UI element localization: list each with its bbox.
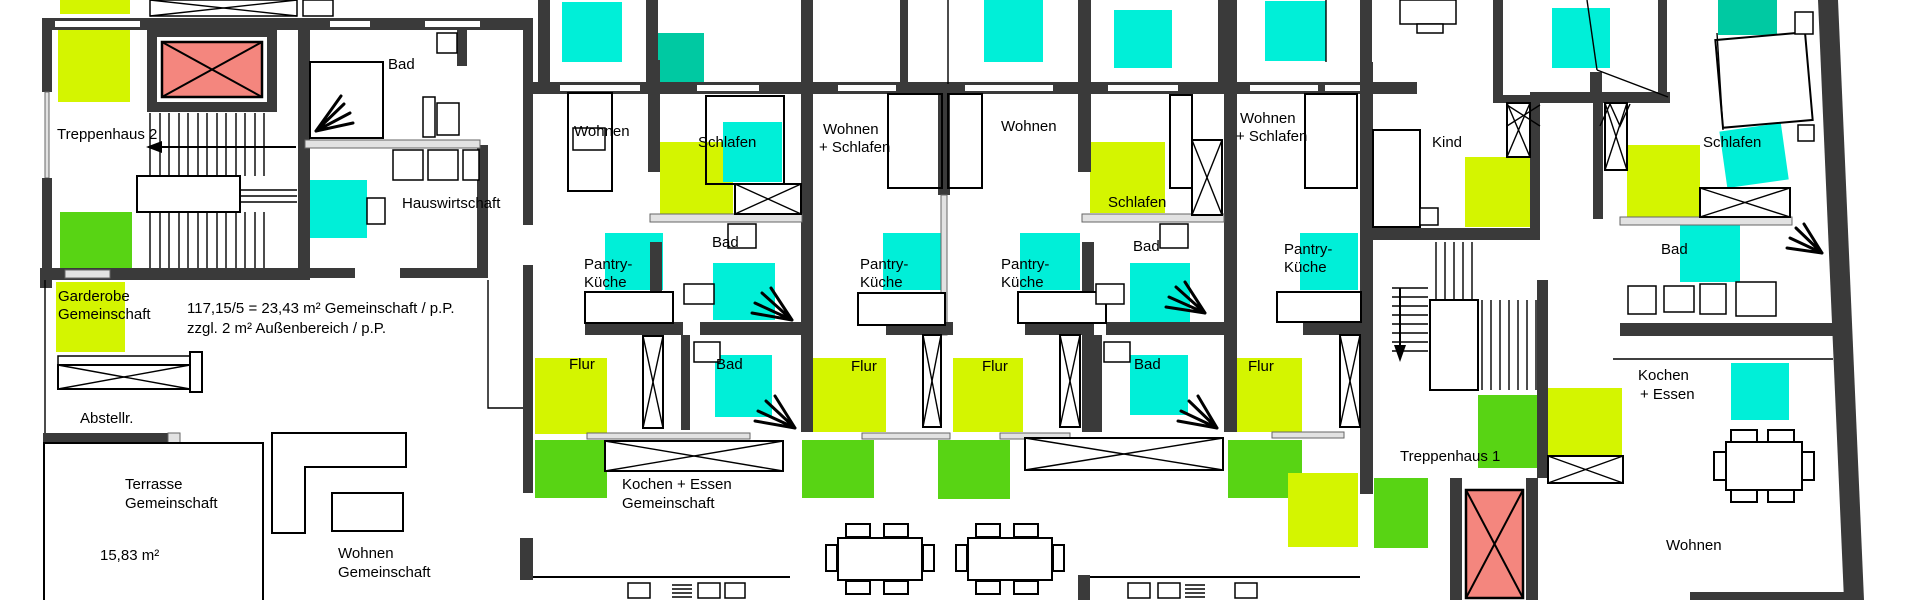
label-wohnen-gemeinschaft: Wohnen bbox=[338, 545, 394, 563]
label-unit1-pantry: Pantry- bbox=[584, 256, 632, 274]
label-unit2-pantry: Pantry- bbox=[860, 256, 908, 274]
label-unit5-wohnen: Wohnen bbox=[1666, 537, 1722, 555]
room-marker bbox=[1265, 1, 1326, 61]
room-marker bbox=[1627, 145, 1700, 218]
room-marker bbox=[1465, 157, 1530, 227]
crossed-wardrobe bbox=[1340, 335, 1360, 427]
label-unit2-wohnen-2: + Schlafen bbox=[819, 139, 890, 157]
annotation-line-2: zzgl. 2 m² Außenbereich / p.P. bbox=[187, 320, 386, 338]
crossed-cabinet bbox=[735, 184, 801, 214]
room-marker bbox=[1552, 8, 1610, 68]
room-marker bbox=[60, 212, 132, 268]
annotation-line-1: 117,15/5 = 23,43 m² Gemeinschaft / p.P. bbox=[187, 300, 455, 318]
label-unit5-bad: Bad bbox=[1661, 241, 1688, 259]
room-marker bbox=[535, 440, 607, 498]
label-unit1-wohnen: Wohnen bbox=[574, 123, 630, 141]
label-terrasse: Terrasse bbox=[125, 476, 183, 494]
label-kochen-gemeinschaft-2: Gemeinschaft bbox=[622, 495, 715, 513]
room-marker bbox=[938, 440, 1010, 499]
label-unit5-schlafen: Schlafen bbox=[1703, 134, 1761, 152]
elevator-1 bbox=[1450, 478, 1538, 600]
crossed-sideboard bbox=[605, 441, 783, 471]
room-marker bbox=[802, 440, 874, 498]
label-kind: Kind bbox=[1432, 134, 1462, 152]
label-unit4-pantry-2: Küche bbox=[1284, 259, 1327, 277]
room-marker bbox=[60, 0, 130, 14]
crossed-bed-right bbox=[1700, 188, 1790, 217]
crossed-wardrobe bbox=[643, 336, 663, 428]
balcony-top-left bbox=[150, 0, 333, 16]
label-unit1-schlafen: Schlafen bbox=[698, 134, 756, 152]
label-garderobe-2: Gemeinschaft bbox=[58, 306, 151, 324]
crossed-wardrobe bbox=[1605, 103, 1627, 170]
label-unit2-wohnen: Wohnen bbox=[823, 121, 879, 139]
garderobe-wardrobe bbox=[58, 352, 202, 392]
label-unit5-kochen-2: + Essen bbox=[1640, 386, 1695, 404]
bad-entry-room bbox=[310, 62, 459, 138]
room-marker bbox=[1114, 10, 1172, 68]
kitchen-counters bbox=[520, 538, 1360, 600]
label-treppenhaus-2: Treppenhaus 2 bbox=[57, 126, 157, 144]
crossed-wardrobe bbox=[1060, 335, 1080, 427]
label-unit2-pantry-2: Küche bbox=[860, 274, 903, 292]
stair-direction-arrow bbox=[1394, 345, 1406, 362]
crossed-wardrobe bbox=[1192, 140, 1222, 215]
floor-plan: Treppenhaus 2 Bad Hauswirtschaft Gardero… bbox=[0, 0, 1917, 600]
label-kochen-gemeinschaft: Kochen + Essen bbox=[622, 476, 732, 494]
room-marker bbox=[1718, 0, 1777, 35]
room-marker bbox=[1719, 123, 1788, 188]
room-marker bbox=[1288, 473, 1358, 547]
label-unit3-flur: Flur bbox=[982, 358, 1008, 376]
label-bad-lower-west: Bad bbox=[716, 356, 743, 374]
elevator-2 bbox=[152, 32, 272, 107]
crossed-sideboard bbox=[1548, 456, 1623, 483]
label-unit3-wohnen: Wohnen bbox=[1001, 118, 1057, 136]
crossed-wardrobe bbox=[923, 335, 941, 427]
label-terrasse-area: 15,83 m² bbox=[100, 547, 159, 565]
label-unit3-schlafen: Schlafen bbox=[1108, 194, 1166, 212]
label-bad-lower-east: Bad bbox=[1134, 356, 1161, 374]
staircase-1 bbox=[1392, 242, 1536, 390]
room-marker bbox=[562, 2, 622, 62]
bed-slanted bbox=[1715, 32, 1812, 128]
label-bad-entry: Bad bbox=[388, 56, 415, 74]
room-marker bbox=[713, 263, 775, 320]
dining-table bbox=[956, 524, 1064, 594]
label-unit4-wohnen-2: + Schlafen bbox=[1236, 128, 1307, 146]
dining-table bbox=[1714, 430, 1814, 502]
label-hauswirtschaft: Hauswirtschaft bbox=[402, 195, 500, 213]
label-unit3-bad: Bad bbox=[1133, 238, 1160, 256]
label-unit1-bad: Bad bbox=[712, 234, 739, 252]
label-unit2-flur: Flur bbox=[851, 358, 877, 376]
label-garderobe: Garderobe bbox=[58, 288, 130, 306]
label-unit4-flur: Flur bbox=[1248, 358, 1274, 376]
label-terrasse-2: Gemeinschaft bbox=[125, 495, 218, 513]
label-wohnen-gemeinschaft-2: Gemeinschaft bbox=[338, 564, 431, 582]
room-marker bbox=[1680, 225, 1740, 282]
room-marker bbox=[984, 0, 1043, 62]
label-unit3-pantry-2: Küche bbox=[1001, 274, 1044, 292]
sofa-wohnen-gemeinschaft bbox=[272, 433, 406, 533]
dining-table bbox=[826, 524, 934, 594]
label-unit1-pantry-2: Küche bbox=[584, 274, 627, 292]
room-marker bbox=[310, 180, 367, 238]
label-abstellraum: Abstellr. bbox=[80, 410, 133, 428]
label-unit1-flur: Flur bbox=[569, 356, 595, 374]
label-unit4-pantry: Pantry- bbox=[1284, 241, 1332, 259]
label-unit3-pantry: Pantry- bbox=[1001, 256, 1049, 274]
room-marker bbox=[1731, 363, 1789, 420]
label-unit4-wohnen: Wohnen bbox=[1240, 110, 1296, 128]
room-marker bbox=[1374, 478, 1428, 548]
crossed-sideboard bbox=[1025, 438, 1223, 470]
label-treppenhaus-1: Treppenhaus 1 bbox=[1400, 448, 1500, 466]
crossed-wardrobe bbox=[1507, 103, 1530, 157]
label-unit5-kochen: Kochen bbox=[1638, 367, 1689, 385]
room-marker bbox=[58, 30, 130, 102]
staircase-2 bbox=[137, 113, 297, 268]
room-marker bbox=[1548, 388, 1622, 458]
